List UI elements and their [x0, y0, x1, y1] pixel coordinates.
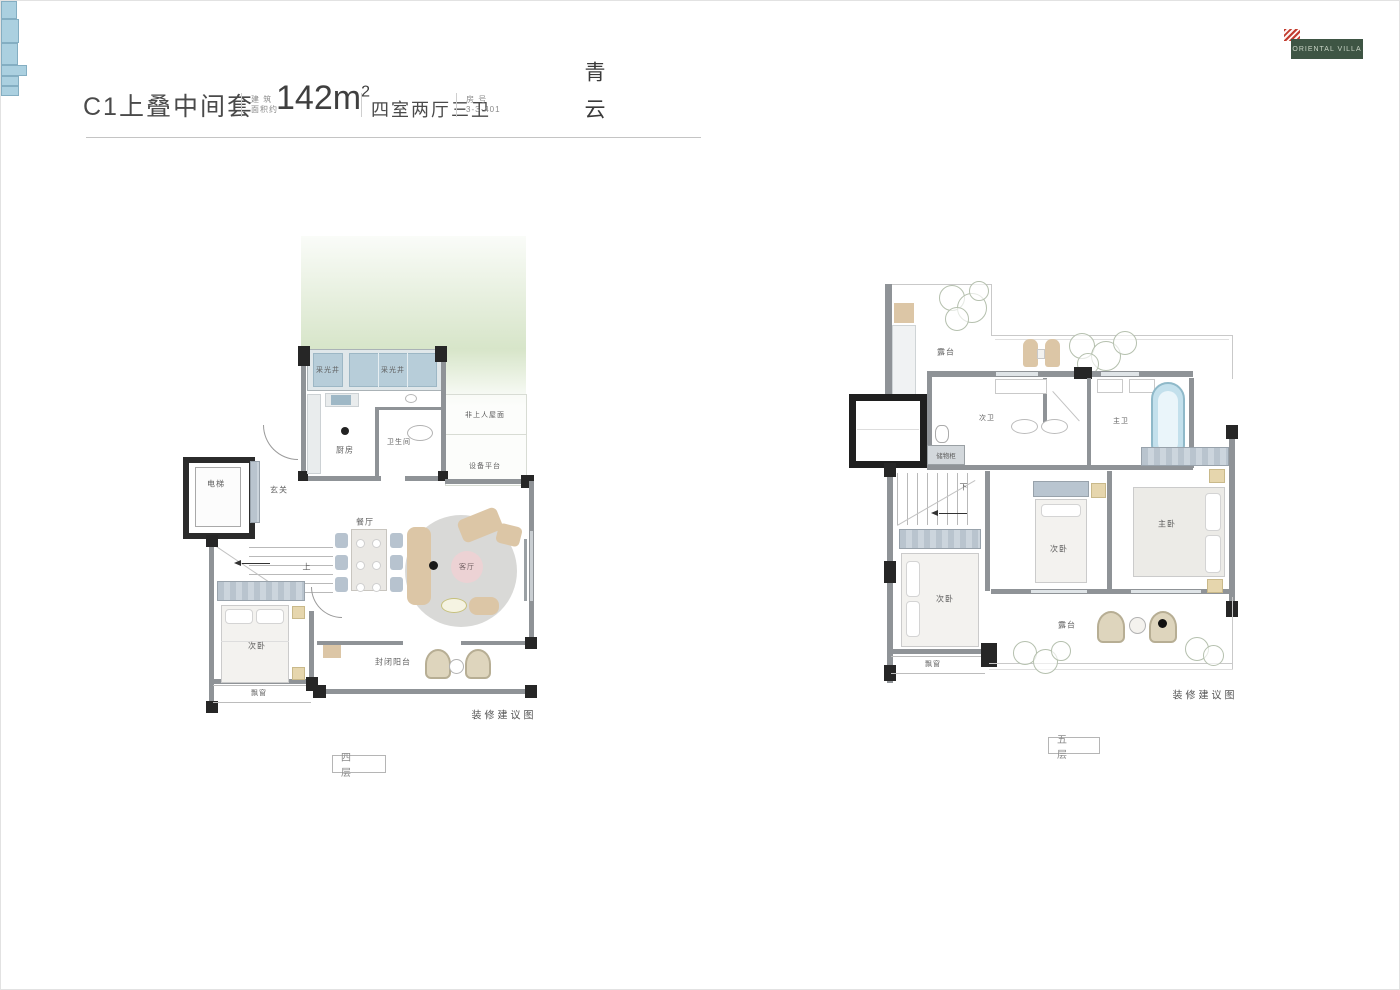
equipment-label: 设备平台	[469, 461, 501, 471]
plate-1	[356, 539, 365, 548]
window-right-f4	[530, 531, 533, 601]
light-well-a-label: 采光井	[316, 365, 340, 375]
storage-label: 储物柜	[936, 450, 956, 460]
unit-number: 房 号 3-3-401	[466, 95, 501, 115]
light-well-mullion-2	[407, 353, 408, 387]
bedroom-left-label: 次卧	[936, 594, 954, 605]
tv-console	[524, 539, 527, 601]
wall-living-top-f4	[445, 479, 529, 484]
wall-terrace-left-f5	[885, 284, 892, 396]
bed-master-pillow-1	[1205, 493, 1221, 531]
bed-left-pillow-2	[906, 601, 920, 637]
wall-right-f5	[1229, 431, 1235, 611]
roof-label: 非上人屋面	[465, 410, 505, 420]
terrace-bottom-label: 露台	[1058, 620, 1076, 631]
wall-bath-top-f5	[927, 371, 1193, 377]
terrace-sink	[1, 43, 18, 65]
bedroom-door-arc	[311, 587, 342, 618]
plate-2	[372, 539, 381, 548]
nightstand-mid	[1091, 483, 1106, 498]
wall-bedroom-right-f4	[309, 611, 314, 683]
nightstand-master-a	[1209, 469, 1225, 483]
wall-balcony-bottom	[317, 689, 534, 694]
balcony-label: 封闭阳台	[375, 657, 411, 668]
bath2-oval-fixture	[1011, 419, 1038, 434]
tree-11	[1051, 641, 1071, 661]
terrace-bottom-right-edge	[1232, 597, 1233, 669]
terrace-bottom-parapet-b	[989, 669, 1233, 670]
cooking-pot-icon	[341, 427, 349, 435]
kitchen-counter	[307, 394, 321, 474]
terrace-chair-1	[1097, 611, 1125, 643]
water-heater-icon	[405, 394, 417, 403]
balcony-washer	[1, 19, 19, 43]
light-well-b-label: 采光井	[381, 365, 405, 375]
stairs-f5-arrow-head	[931, 510, 938, 516]
floorplan-page: C1上叠中间套 建 筑 面积约 142m2 四室两厅三卫 房 号 3-3-401…	[0, 0, 1400, 990]
dining-label: 餐厅	[356, 517, 374, 528]
master-bedroom-label: 主卧	[1158, 519, 1176, 530]
landscape-gradient	[301, 236, 526, 349]
bath2-vanity	[995, 379, 1047, 394]
headboard-mid	[1033, 481, 1089, 497]
dining-chair-1	[335, 533, 348, 548]
bath2-toilet	[935, 425, 949, 443]
wardrobe-f4	[217, 581, 305, 601]
wall-stair-bedroom	[985, 471, 990, 591]
column-9	[313, 685, 326, 698]
area-value: 142m2	[276, 79, 370, 118]
bedroom-f4-label: 次卧	[248, 641, 266, 652]
tree-7	[1113, 331, 1137, 355]
floor5-tag: 五 层	[1048, 737, 1100, 754]
plate-4	[372, 561, 381, 570]
plate-3	[356, 561, 365, 570]
bath-window-1	[996, 372, 1038, 376]
stairs-f5-arrow-line	[939, 513, 967, 514]
stairs-f4-arrow-head	[234, 560, 241, 566]
master-sink-1	[1, 76, 19, 86]
column-13	[884, 463, 896, 477]
master-bath-label: 主卫	[1113, 416, 1129, 426]
terrace-step-vert	[991, 284, 992, 335]
header-divider-3	[456, 93, 457, 117]
bed-master-pillow-2	[1205, 535, 1221, 573]
area-number: 142m	[276, 79, 361, 117]
wall-mid-master	[1107, 471, 1112, 593]
nightstand-master-b	[1207, 579, 1223, 593]
header-divider-1	[241, 93, 242, 117]
dining-chair-4	[390, 533, 403, 548]
foyer-label: 玄关	[270, 485, 288, 496]
dining-chair-2	[335, 555, 348, 570]
bay-window-f5-label: 飘窗	[925, 659, 941, 669]
wall-kitchen-right	[441, 349, 446, 481]
unit-value: 3-3-401	[466, 105, 501, 115]
coffee-table	[441, 598, 467, 613]
elevator-cab	[195, 467, 241, 527]
logo-text: ORIENTAL VILLA	[1292, 46, 1361, 53]
dining-table	[351, 529, 387, 591]
living-label: 客厅	[459, 562, 475, 572]
stair-down-label: 下	[960, 482, 969, 493]
master-wardrobe	[1141, 447, 1229, 466]
terrace-top-edge-b	[991, 335, 1233, 336]
plate-5	[356, 583, 365, 592]
header-underline	[86, 137, 701, 138]
void-box-line	[857, 429, 919, 430]
column-10	[525, 637, 537, 649]
column-17	[1226, 425, 1238, 439]
area-label-bottom: 面积约	[251, 105, 278, 115]
light-well-mullion-1	[378, 353, 379, 387]
header-divider-2	[361, 93, 362, 117]
master-sink-2	[1, 86, 19, 96]
stairs-f4-arrow-line	[242, 563, 270, 564]
plate-6	[372, 583, 381, 592]
roof-divider	[445, 434, 527, 435]
bedroom-window-2	[1131, 590, 1201, 593]
column-1	[298, 346, 310, 366]
nightstand-f4-a	[292, 606, 305, 619]
stair-up-label: 上	[303, 562, 312, 573]
wall-shower-master	[1087, 378, 1091, 466]
bed-left-pillow-1	[906, 561, 920, 597]
bath-window-2	[1101, 372, 1139, 376]
roof-equipment-area	[445, 394, 527, 486]
tree-13	[1203, 645, 1224, 666]
floor-lamp-icon	[429, 561, 438, 570]
wall-kitchen-left	[301, 349, 306, 481]
area-label: 建 筑 面积约	[251, 95, 278, 115]
terrace-counter	[892, 325, 916, 397]
wall-kitchen-bottom	[301, 476, 381, 481]
bedroom-window-1	[1031, 590, 1087, 593]
elevator-label: 电梯	[207, 479, 225, 490]
terrace-cabinet	[894, 303, 914, 323]
terrace-right-edge	[1232, 335, 1233, 379]
wall-bedroomleft-bottom	[887, 649, 987, 654]
shower-oval-fixture	[1041, 419, 1068, 434]
nightstand-f4-b	[292, 667, 305, 680]
terrace-plant-pot	[1158, 619, 1167, 628]
bed-f4-pillow-2	[256, 609, 284, 624]
kitchen-sink	[331, 395, 351, 405]
balcony-chair-2	[465, 649, 491, 679]
area-label-top: 建 筑	[251, 95, 278, 105]
bed-f4-pillow-1	[225, 609, 253, 624]
terrace-table	[1129, 617, 1146, 634]
caption-f4: 装修建议图	[472, 707, 537, 722]
void-box	[849, 394, 927, 468]
master-vanity-2	[1129, 379, 1155, 393]
wall-bath-top	[375, 407, 445, 410]
kitchen-label: 厨房	[336, 445, 354, 456]
area-sup: 2	[361, 84, 370, 101]
floor4-tag: 四 层	[332, 755, 386, 773]
ottoman	[469, 597, 499, 615]
page-title: C1上叠中间套	[83, 87, 254, 123]
bed-mid-pillow	[1041, 504, 1081, 517]
wall-balcony-top-b	[461, 641, 534, 645]
lounge-chair-1	[1023, 339, 1038, 367]
bathroom-label: 卫生间	[387, 437, 411, 447]
column-14	[884, 561, 896, 583]
wall-kitchen-bath	[375, 409, 379, 479]
balcony-cabinet	[323, 645, 341, 658]
dining-chair-5	[390, 555, 403, 570]
bay-window-f4-label: 飘窗	[251, 688, 267, 698]
wardrobe-bedroom-left	[899, 529, 981, 549]
brand-vertical-text: 青云	[579, 61, 609, 135]
bath2-label: 次卫	[979, 413, 995, 423]
tree-4	[969, 281, 989, 301]
dining-chair-6	[390, 577, 403, 592]
master-vanity-1	[1097, 379, 1123, 393]
bath2-sink	[1, 65, 27, 76]
column-11	[525, 685, 537, 698]
balcony-chair-1	[425, 649, 451, 679]
shoe-cabinet	[250, 461, 260, 523]
balcony-table	[449, 659, 464, 674]
caption-f5: 装修建议图	[1173, 687, 1238, 702]
terrace-top-label: 露台	[937, 347, 955, 358]
column-2	[435, 346, 447, 362]
lounge-side-table	[1037, 349, 1045, 359]
column-5	[206, 535, 218, 547]
unit-label: 房 号	[466, 95, 501, 105]
washer-f4	[1, 1, 17, 19]
shower-door-line	[1052, 391, 1080, 421]
sofa	[407, 527, 431, 605]
logo-banner: ORIENTAL VILLA	[1291, 39, 1363, 59]
lounge-chair-2	[1045, 339, 1060, 367]
tree-3	[945, 307, 969, 331]
entry-door-arc	[263, 425, 298, 460]
bathtub-inner	[1158, 391, 1178, 453]
bedroom-mid-label: 次卧	[1050, 544, 1068, 555]
